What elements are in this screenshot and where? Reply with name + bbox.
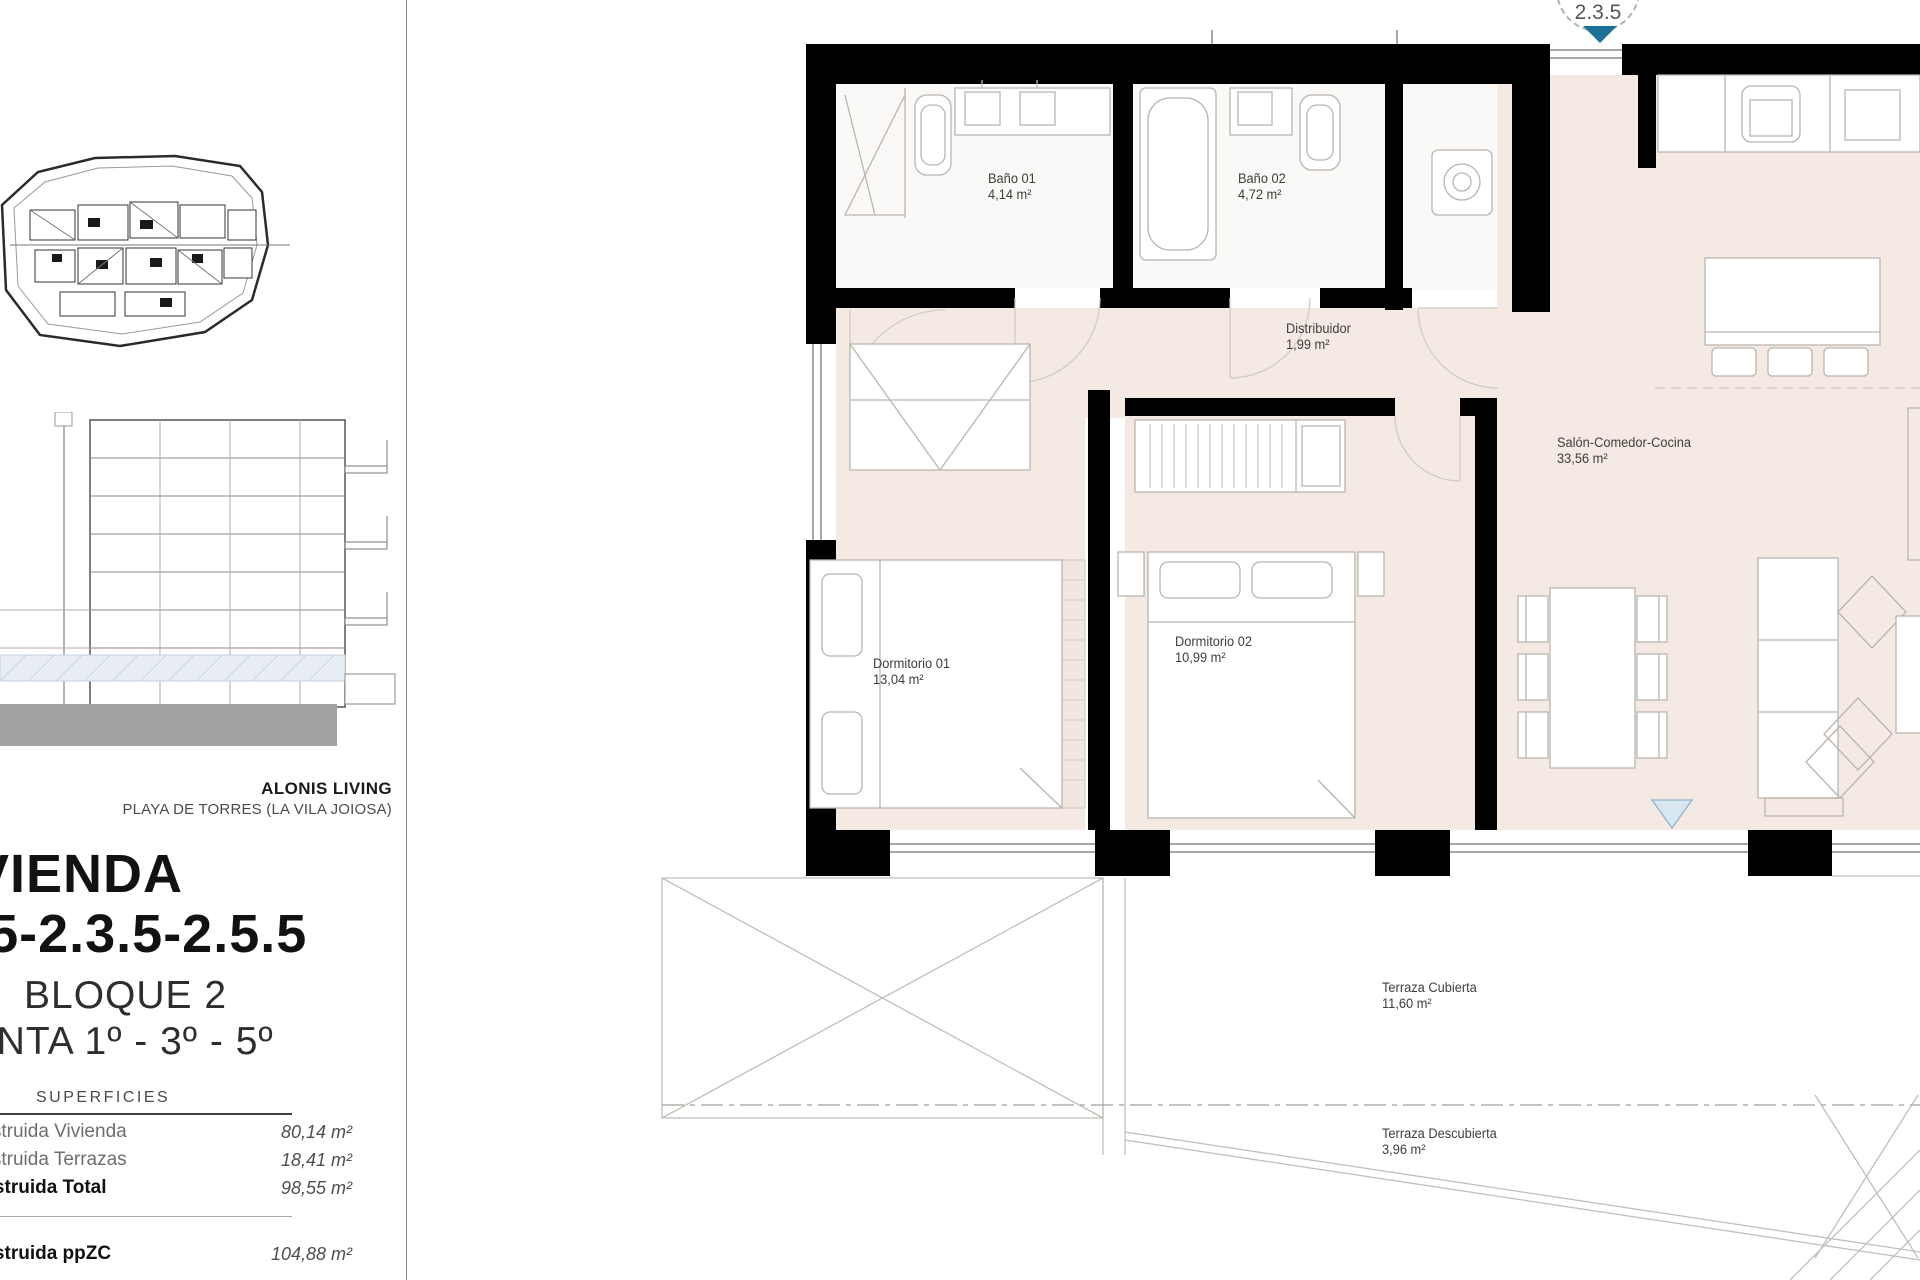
room-label-bano-01: Baño 01 4,14 m² — [988, 171, 1036, 203]
room-label-dormitorio-02: Dormitorio 02 10,99 m² — [1175, 634, 1252, 666]
surfaces-rule-top — [0, 1113, 292, 1115]
surfaces-rule-bottom — [0, 1216, 292, 1217]
project-location: PLAYA DE TORRES (LA VILA JOIOSA) — [0, 801, 392, 818]
room-label-terraza-descubierta: Terraza Descubierta 3,96 m² — [1382, 1126, 1497, 1158]
surface-value: 80,14 m² — [190, 1122, 352, 1143]
surface-value: 104,88 m² — [190, 1244, 352, 1265]
sheet-title: VIVIENDA — [0, 843, 183, 905]
dimension-ticks — [1212, 30, 1397, 44]
surface-label: Construida Terrazas — [0, 1149, 127, 1171]
surface-label: Construida ppZC — [0, 1243, 111, 1265]
entrance-arrow-icon — [1583, 26, 1617, 43]
surface-row-terrazas: Construida Terrazas 18,41 m² — [0, 1149, 360, 1171]
room-label-distribuidor: Distribuidor 1,99 m² — [1286, 321, 1351, 353]
surfaces-heading: SUPERFICIES — [36, 1089, 170, 1107]
dorm2-furniture — [1118, 420, 1384, 818]
brand-name: ALONIS LIVING — [0, 779, 392, 799]
site-plan-drawing — [0, 150, 300, 365]
surface-row-vivienda: Construida Vivienda 80,14 m² — [0, 1121, 360, 1143]
surface-row-total: Construida Total 98,55 m² — [0, 1177, 360, 1199]
room-label-dormitorio-01: Dormitorio 01 13,04 m² — [873, 656, 950, 688]
laundry-fixtures — [1432, 150, 1492, 215]
ground-bar — [0, 704, 337, 746]
terraces — [662, 876, 1920, 1280]
surface-value: 18,41 m² — [190, 1150, 352, 1171]
room-label-salon: Salón-Comedor-Cocina 33,56 m² — [1557, 435, 1691, 467]
building-elevation-drawing — [0, 412, 400, 757]
entrance-marker-label: 2.3.5 — [1575, 1, 1622, 25]
surface-label: Construida Vivienda — [0, 1121, 127, 1143]
dining-furniture — [1518, 588, 1667, 768]
floors-label: PLANTA 1º - 3º - 5º — [0, 1020, 274, 1064]
floorplan-sheet: ALONIS LIVING PLAYA DE TORRES (LA VILA J… — [0, 0, 1920, 1280]
room-label-terraza-cubierta: Terraza Cubierta 11,60 m² — [1382, 980, 1477, 1012]
room-label-bano-02: Baño 02 4,72 m² — [1238, 171, 1286, 203]
column-divider — [406, 0, 407, 1280]
surface-value: 98,55 m² — [190, 1178, 352, 1199]
block-label: BLOQUE 2 — [24, 974, 227, 1018]
unit-numbers: 2.1.5-2.3.5-2.5.5 — [0, 903, 307, 965]
surface-label: Construida Total — [0, 1177, 107, 1199]
surface-row-ppzc: Construida ppZC 104,88 m² — [0, 1243, 360, 1265]
